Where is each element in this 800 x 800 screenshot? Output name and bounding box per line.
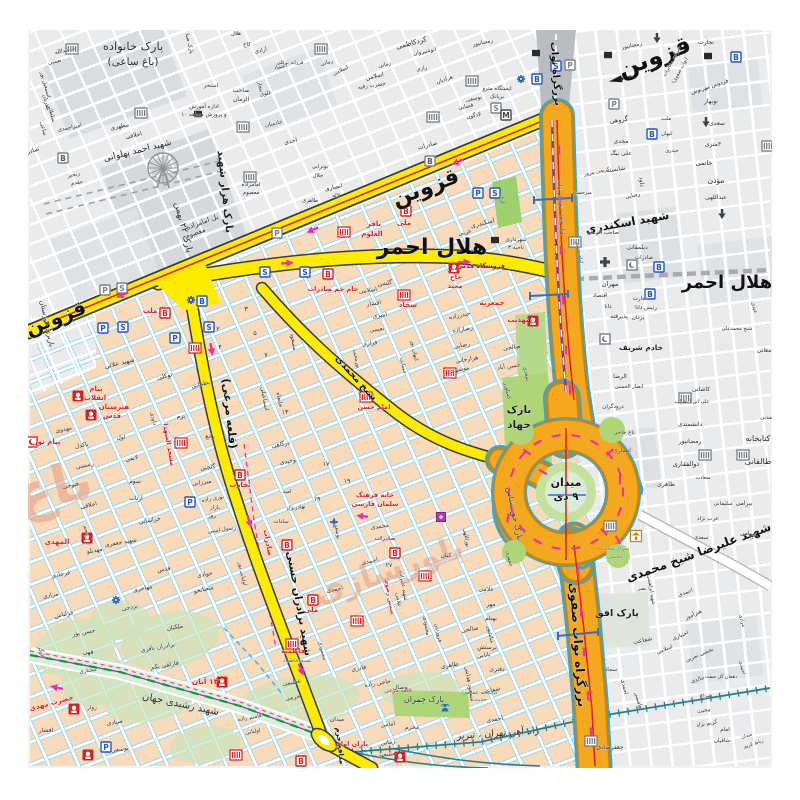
gas-station-icon: S <box>117 283 127 293</box>
street-label: غلامی <box>479 586 494 593</box>
mosque-icon <box>466 76 478 86</box>
street-label: رابع <box>205 433 215 440</box>
street-label: کاج <box>243 41 251 48</box>
mosque-icon <box>230 750 242 760</box>
street-label: قهی <box>83 649 94 656</box>
parking-icon: P <box>473 188 483 198</box>
street-label: قدس <box>103 412 122 420</box>
street-label: رئیس دانا <box>635 305 657 311</box>
street-label: نوبهار <box>703 98 718 105</box>
street-label: تجارت <box>633 296 648 302</box>
street-label: مدنی <box>760 415 772 421</box>
street-label: علی ابن ابیطالب <box>675 399 710 405</box>
street-label: هنرستان <box>99 403 130 411</box>
neighborhood-house-icon <box>631 531 642 542</box>
building-icon <box>532 50 540 56</box>
street-label: ناحیه ۳ <box>508 245 524 251</box>
parking-icon: P <box>170 333 180 343</box>
svg-text:B: B <box>60 154 66 163</box>
street-label: حاج <box>450 273 462 281</box>
street-label: ۱۷ <box>323 460 330 468</box>
street-label: سعدی <box>694 535 709 541</box>
bank-icon: B <box>323 269 333 279</box>
road-label: هلال احمر <box>681 272 772 293</box>
lane-dash <box>552 435 561 437</box>
mosque-icon <box>427 112 439 122</box>
street-label: امام حسن <box>358 403 391 411</box>
street-label: ۴ <box>218 343 222 351</box>
street-label: اداره آموزش <box>189 103 219 110</box>
street-label: سرای محله <box>603 546 630 552</box>
street-label: باقر <box>366 220 382 228</box>
mosque-icon <box>699 450 711 460</box>
street-label: خانه فرهنگ <box>356 491 394 499</box>
street-label: دیلمقانی <box>626 244 648 251</box>
mosque-icon <box>244 172 256 182</box>
gas-station-icon: S <box>204 322 214 332</box>
svg-text:B: B <box>534 75 540 84</box>
street-label: طاهری <box>657 481 675 488</box>
street-label: المهدی <box>45 538 70 546</box>
mosque-icon <box>135 108 147 118</box>
street-label: معانی <box>757 347 772 354</box>
street-label: پذیرفته <box>610 313 628 320</box>
road-label: میدان <box>551 476 582 489</box>
street-label: ۷ <box>264 351 268 359</box>
street-label: نصر <box>637 586 647 592</box>
svg-text:B: B <box>649 130 655 139</box>
svg-text:P: P <box>172 334 178 343</box>
street-label: کتابخانه <box>745 434 770 443</box>
svg-text:P: P <box>611 100 617 109</box>
street-label: صادرات <box>375 536 396 542</box>
street-label: حیدری <box>665 148 679 154</box>
street-label: بیرامی <box>740 530 757 537</box>
street-label: شاقیان <box>714 738 731 744</box>
street-label: رمضانپور <box>678 438 702 445</box>
street-label: ۱۳ آبان <box>192 676 219 686</box>
road-label: هلال احمر <box>376 235 488 260</box>
street-label: تهذیب <box>507 316 529 324</box>
street-label: ازناب <box>129 495 143 502</box>
street-label: سادات <box>273 519 289 525</box>
street-label: انصاری <box>613 447 631 454</box>
clinic-icon <box>528 316 539 327</box>
street-label: استخر <box>203 83 219 89</box>
street-label: اقتصاد <box>593 293 608 299</box>
street-label: ذوالفقاری <box>673 460 700 468</box>
bank-melli-flower-icon <box>112 596 120 604</box>
bank-icon: B <box>654 262 664 272</box>
street-label: عباسی <box>608 554 624 560</box>
street-label: شیخ محمدعلی <box>722 326 753 332</box>
street-label: سعدی <box>709 120 725 127</box>
street-label: جعفرصادق <box>596 744 623 751</box>
street-label: مؤذن <box>708 176 725 185</box>
building-icon <box>704 53 712 59</box>
svg-text:B: B <box>647 290 653 299</box>
bank-icon: B <box>296 756 306 766</box>
street-label: ۱۹ <box>314 495 321 503</box>
svg-text:B: B <box>237 471 243 480</box>
street-label: امام <box>720 727 730 733</box>
street-label: مهر <box>485 601 495 608</box>
street-label: طالقانی <box>745 457 772 466</box>
street-label: عرب نژاد <box>697 516 719 522</box>
street-label: بازار <box>209 505 221 511</box>
street-label: پارک چمران <box>404 695 444 704</box>
lane-dash <box>571 435 580 437</box>
street-label: ملت <box>661 116 671 122</box>
bank-icon: B <box>425 156 435 166</box>
street-label: جمعریه <box>480 299 505 307</box>
street-label: افشار <box>38 727 54 734</box>
street-label: داود <box>638 177 646 188</box>
street-label: و پرورش منطقه ۱۰ <box>181 112 227 118</box>
street-label: اول <box>117 434 126 441</box>
parking-icon: P <box>100 285 110 295</box>
street-label: بریانک <box>490 93 505 100</box>
street-label: خادم شریف <box>619 343 663 352</box>
mosque-icon <box>604 521 616 531</box>
svg-text:B: B <box>656 263 662 272</box>
mosque-icon <box>585 736 597 746</box>
mosque-icon <box>189 343 201 353</box>
street-label: علی بیگ <box>610 149 631 157</box>
road-label: پارک <box>507 404 532 416</box>
mosque-icon <box>398 290 410 300</box>
street-label: روز <box>207 513 216 519</box>
street-label: ۲ <box>216 325 220 333</box>
street-label: کاشانی <box>692 386 710 393</box>
street-label: ملی <box>397 219 411 227</box>
bank-icon: B <box>58 153 68 163</box>
svg-text:M: M <box>502 111 509 120</box>
clinic-icon <box>86 410 97 421</box>
street-label: پارک افق <box>595 608 639 619</box>
street-label: صاحب الزمان <box>587 230 619 236</box>
street-label: انصار الحسین <box>615 384 644 390</box>
street-label: ایستگاه مترو <box>481 85 512 92</box>
svg-text:S: S <box>493 104 498 113</box>
svg-text:S: S <box>119 284 124 293</box>
street-label: سعادت <box>695 475 710 481</box>
street-label: وصال <box>393 684 407 691</box>
street-label: فاطمیه <box>281 647 305 655</box>
bank-icon: B <box>235 470 245 480</box>
svg-text:P: P <box>187 498 193 507</box>
street-label: ۱۹ <box>344 477 351 485</box>
street-label: تجارت <box>698 39 714 46</box>
street-label: طاهری <box>302 198 318 204</box>
street-label: پیام نور <box>33 438 61 446</box>
street-label: ۳ <box>244 305 248 313</box>
gas-station-icon: S <box>260 267 270 277</box>
svg-text:B: B <box>298 757 304 766</box>
street-label: پیام <box>89 385 103 393</box>
svg-text:S: S <box>120 323 125 332</box>
street-label: یاران امام <box>336 740 368 748</box>
clinic-icon <box>69 704 80 715</box>
mosque-icon <box>175 438 187 448</box>
street-label: محرم <box>405 724 419 731</box>
street-label: دهقان گل صفت <box>705 673 737 680</box>
street-label: میدان <box>330 716 344 723</box>
svg-text:B: B <box>733 53 739 62</box>
street-label: سجاد <box>399 301 417 309</box>
bank-icon: B <box>647 129 657 139</box>
street-label: بزم <box>177 413 186 420</box>
svg-text:P: P <box>475 189 481 198</box>
street-label: مهران <box>602 280 619 288</box>
mosque-icon <box>315 44 327 54</box>
map-layers: PPPPPSSSSSSPPPPSSBBBBBBBBBBBBBBBBMقزوینق… <box>0 0 800 800</box>
building-icon <box>491 237 499 243</box>
mosque-icon <box>338 227 350 237</box>
road-label: پارک خانواده <box>103 39 163 54</box>
street-label: تجارت <box>229 481 251 489</box>
svg-text:S: S <box>302 268 307 277</box>
bank-icon: B <box>197 296 207 306</box>
lane-dash <box>591 728 592 737</box>
street-label: درودگران <box>602 403 624 410</box>
clinic-icon <box>83 750 94 761</box>
street-label: خاتمی <box>696 159 713 167</box>
metro-station-icon: M <box>501 110 511 120</box>
street-label: بهنام <box>485 615 497 622</box>
lane-dash <box>578 568 579 577</box>
bank-melli-flower-icon <box>517 75 525 83</box>
street-label: باغ حاجی <box>613 430 635 436</box>
street-label: سوم <box>129 478 141 485</box>
bank-icon: B <box>532 74 542 84</box>
svg-text:P: P <box>274 229 280 238</box>
svg-text:P: P <box>102 286 108 295</box>
city-block <box>697 235 784 304</box>
lane-dash <box>552 547 561 549</box>
parking-icon: P <box>98 323 108 333</box>
street-label: مسجدفاطمیه <box>283 658 311 664</box>
gas-station-icon: S <box>300 267 310 277</box>
street-label: امامزاده <box>242 182 261 188</box>
road-label: جهاد <box>507 419 531 431</box>
street-label: مجدی <box>614 138 629 145</box>
street-label: ۱۳ <box>282 408 289 416</box>
street-label: سلیمانی <box>713 501 732 507</box>
svg-text:P: P <box>100 324 106 333</box>
street-label: دفتری <box>489 666 505 673</box>
street-label: صادرات <box>635 255 653 261</box>
svg-text:S: S <box>206 323 211 332</box>
street-label: شهرداری <box>505 237 527 243</box>
gas-station-icon: S <box>491 103 501 113</box>
street-label: عبداللهی <box>705 194 727 201</box>
svg-text:P: P <box>103 743 109 752</box>
street-label: سجاد <box>605 667 618 673</box>
bank-icon: B <box>160 308 170 318</box>
svg-text:B: B <box>199 297 205 306</box>
bank-melli-flower-icon <box>187 296 195 304</box>
crescent-icon <box>600 334 610 344</box>
street-label: بوترابی <box>312 164 329 170</box>
parking-icon: P <box>565 60 575 70</box>
clinic-icon <box>395 752 406 763</box>
street-label: العلوم <box>361 230 382 238</box>
street-label: ۳متری <box>705 141 722 148</box>
street-label: کیان <box>441 552 452 559</box>
street-label: مجید <box>447 282 462 290</box>
clinic-icon <box>73 391 84 402</box>
road-label: ۹ دی <box>553 491 579 503</box>
street-label: سراج <box>700 693 713 699</box>
map-viewport[interactable]: PPPPPSSSSSSPPPPSSBBBBBBBBBBBBBBBBMقزوینق… <box>0 0 800 800</box>
svg-text:S: S <box>492 189 497 198</box>
street-label: الزمان <box>233 96 250 103</box>
svg-text:S: S <box>262 268 267 277</box>
map-canvas[interactable]: PPPPPSSSSSSPPPPSSBBBBBBBBBBBBBBBBMقزوینق… <box>0 0 800 800</box>
culture-center-icon <box>437 513 446 522</box>
street-label: جام جم صادرات <box>308 285 359 293</box>
svg-text:B: B <box>427 157 433 166</box>
bank-icon: B <box>282 540 292 550</box>
street-label: یزدان <box>632 315 645 321</box>
street-label: ملت <box>143 307 158 315</box>
street-label: معصوم <box>243 190 260 196</box>
street-label: هلال <box>231 31 241 37</box>
street-label: ۵ <box>253 329 257 337</box>
street-label: الرضا <box>613 373 627 380</box>
street-label: زوار <box>86 705 97 711</box>
crescent-icon <box>627 260 637 270</box>
svg-text:B: B <box>162 309 168 318</box>
street-label: صاحب <box>233 87 250 94</box>
parking-icon: P <box>609 99 619 109</box>
parking-icon: P <box>185 497 195 507</box>
street-label: ملی <box>304 606 318 614</box>
lane-dash <box>571 547 580 549</box>
street-label: امید <box>282 489 291 495</box>
street-label: ۲۷ <box>386 562 393 569</box>
street-label: میرحسینی <box>570 190 592 196</box>
street-label: لاله <box>332 193 340 199</box>
street-label: بیرامی <box>736 500 753 507</box>
mosque-icon <box>237 122 249 132</box>
street-label: کیهان <box>661 131 673 137</box>
mosque-icon <box>351 616 363 626</box>
svg-text:P: P <box>567 61 573 70</box>
svg-text:B: B <box>325 270 331 279</box>
street-label: جلال <box>313 173 324 179</box>
bank-icon: B <box>731 52 741 62</box>
road-label: (باغ ساعی) <box>108 56 159 68</box>
street-label: فروشگاه قدس <box>457 262 505 270</box>
street-label: دانا <box>604 304 612 310</box>
building-icon <box>604 52 612 58</box>
street-label: پرستش <box>477 644 497 651</box>
svg-text:B: B <box>284 541 290 550</box>
street-label: سلمان فارسی <box>351 500 398 508</box>
street-label: دانشمندی <box>678 421 703 428</box>
gas-station-icon: S <box>118 322 128 332</box>
lane-dash <box>507 514 509 523</box>
street-label: انقلاب <box>84 394 106 402</box>
parking-icon: P <box>272 228 282 238</box>
